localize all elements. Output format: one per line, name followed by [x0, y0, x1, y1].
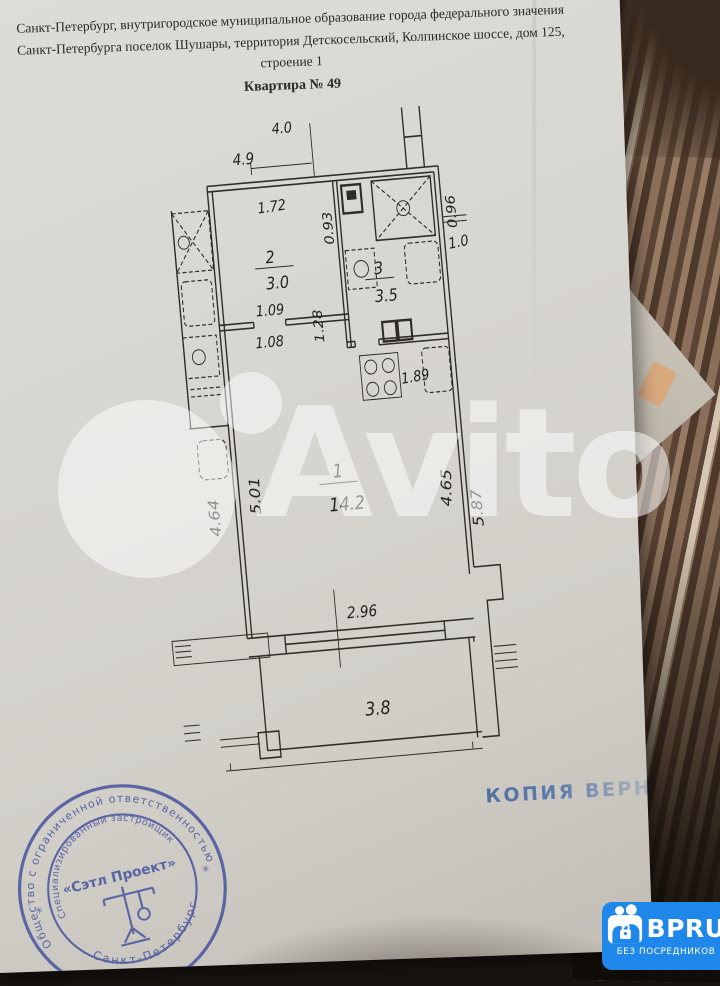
room1-number: 1	[332, 461, 344, 483]
room3-number: 3	[373, 258, 384, 278]
dim-left-in: 5.01	[246, 477, 265, 515]
dim-hall-depth: 0.93	[320, 211, 338, 245]
bpru-logo-icon	[607, 904, 643, 946]
shower-icon	[371, 176, 435, 241]
room2-area: 3.0	[265, 272, 290, 293]
sink-icon	[345, 248, 377, 289]
crane-icon	[101, 879, 164, 947]
neighbour-sink-icon	[183, 335, 220, 379]
bathroom-fixtures	[339, 176, 446, 345]
dim-balcony-width: 2.96	[346, 602, 378, 623]
entrance-door-frame	[401, 106, 424, 169]
dim-kitchen: 1.89	[400, 366, 431, 388]
dim-right-in: 4.65	[438, 469, 455, 507]
seal-company-name: «Сэтл Проект»	[61, 855, 178, 899]
neighbour-fixtures	[170, 208, 233, 481]
neighbour-shower-icon	[172, 211, 214, 274]
dim-right-b: 1.0	[447, 232, 470, 253]
dim-right-out: 5.87	[468, 488, 488, 527]
bpru-tagline: БЕЗ ПОСРЕДНИКОВ	[617, 947, 716, 957]
room3-area: 3.5	[374, 285, 399, 306]
dim-right-a: 0.96	[443, 194, 461, 228]
dim-pass-b: 1.08	[255, 333, 285, 353]
dim-top-a: 4.0	[271, 119, 293, 138]
seal-outer-top-text: Общество с ограниченной ответственностью	[3, 771, 229, 953]
address-header: Санкт-Петербург, внутригородское муницип…	[0, 0, 623, 109]
dim-top-b: 4.9	[232, 150, 255, 170]
dim-hall-width: 1.72	[257, 197, 287, 218]
floor-plan: 4.0 4.9 1.72 0.93 1.28 1.09 1.08 1.89 0.…	[122, 89, 556, 785]
neighbour-cabinet-icon	[181, 279, 215, 326]
paper-sheet: Санкт-Петербург, внутригородское муницип…	[0, 0, 653, 973]
outer-walls	[207, 163, 524, 757]
toilet-icon	[404, 241, 441, 285]
room2-number: 2	[265, 248, 276, 268]
dim-left-out: 4.64	[205, 499, 225, 538]
dim-pass-a: 1.09	[255, 301, 285, 321]
vent-shaft-icon	[346, 190, 356, 200]
stove-icon	[359, 352, 401, 400]
balcony-window	[244, 578, 477, 676]
balcony-column	[258, 731, 281, 759]
seal-star-left: ✳	[34, 905, 44, 918]
balcony-area: 3.8	[364, 697, 391, 721]
seal-outer-bottom-text: Санкт-Петербург	[82, 895, 212, 973]
bpru-brand-text: BPRU	[647, 914, 720, 943]
company-seal: Общество с ограниченной ответственностью…	[0, 760, 251, 973]
dim-hall-h: 1.28	[310, 309, 328, 343]
balcony-walls	[178, 637, 484, 775]
copy-verified-stamp: КОПИЯ ВЕРНА	[485, 776, 653, 808]
neighbour-toilet-icon	[197, 439, 229, 480]
floor-plan-drawing: 4.0 4.9 1.72 0.93 1.28 1.09 1.08 1.89 0.…	[122, 89, 556, 785]
seal-star-right: ✳	[201, 863, 211, 876]
room1-area: 14.2	[328, 492, 365, 517]
